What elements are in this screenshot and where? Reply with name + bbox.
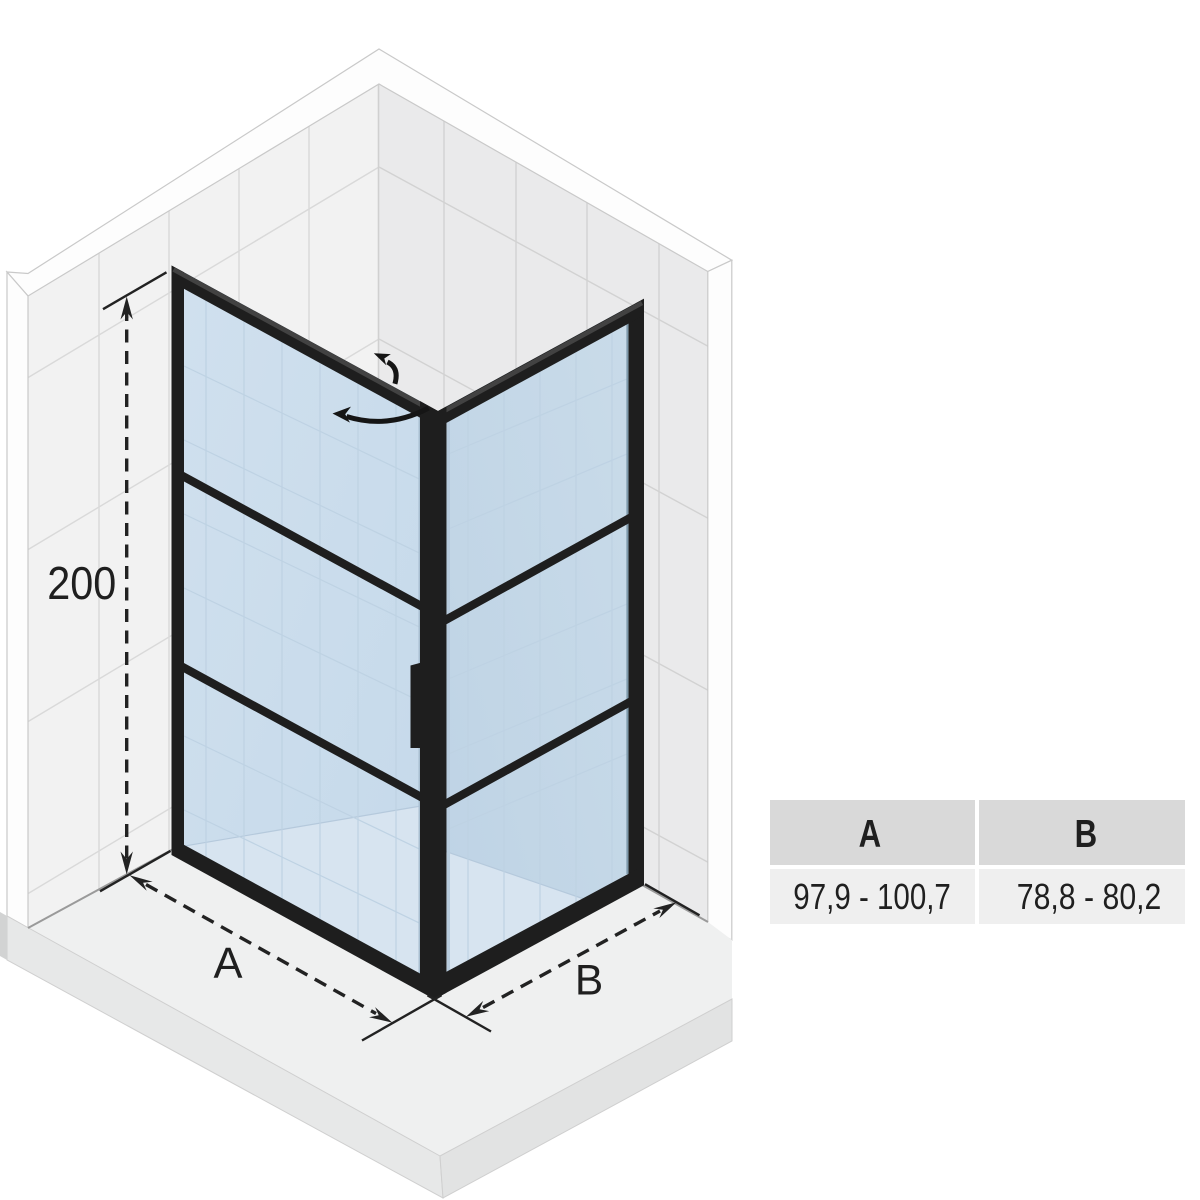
svg-text:B: B: [575, 958, 603, 1005]
svg-text:200: 200: [47, 557, 116, 609]
svg-text:A: A: [213, 940, 242, 988]
